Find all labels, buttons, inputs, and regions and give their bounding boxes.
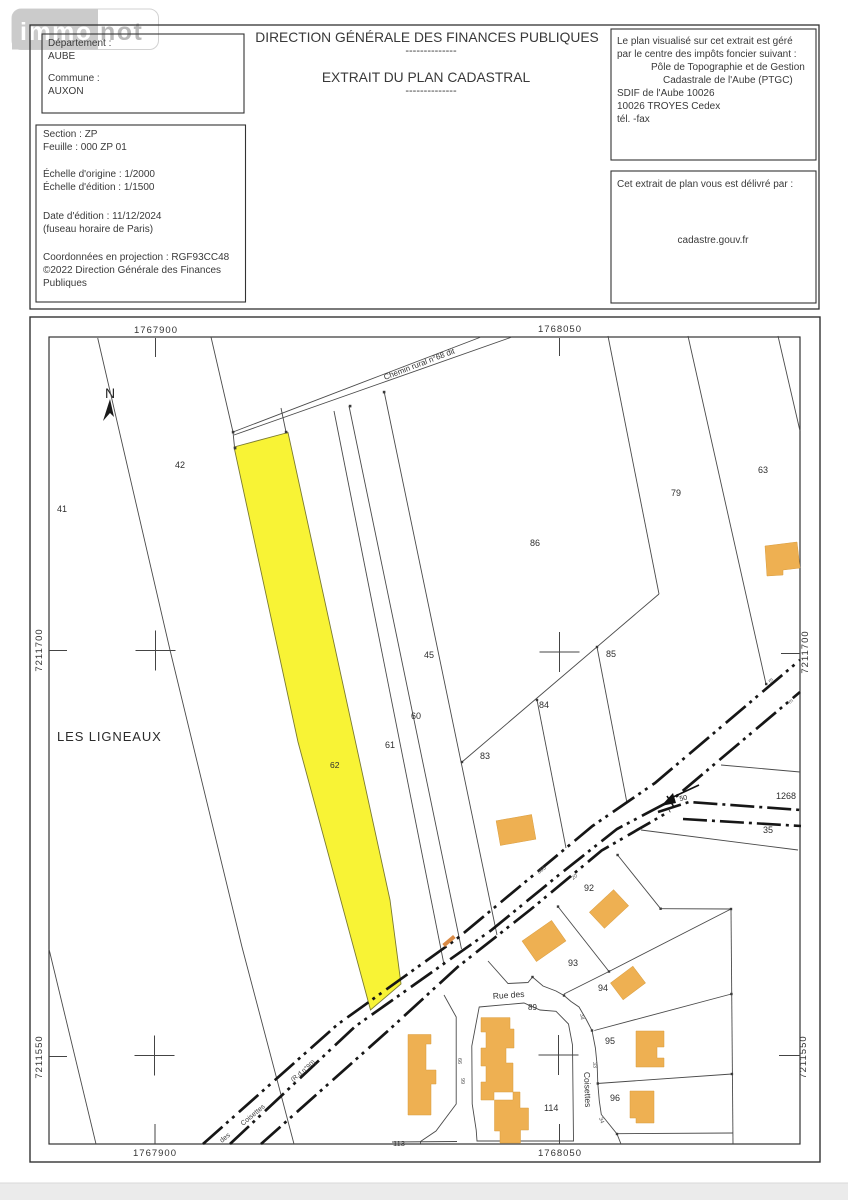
- svg-text:1768050: 1768050: [538, 324, 582, 335]
- svg-text:par le centre des impôts fonci: par le centre des impôts foncier suivant…: [617, 49, 797, 60]
- svg-text:1268: 1268: [776, 791, 796, 801]
- svg-text:(fuseau horaire de Paris): (fuseau horaire de Paris): [43, 224, 153, 235]
- svg-text:99: 99: [459, 1078, 465, 1084]
- svg-text:95: 95: [605, 1036, 615, 1046]
- svg-text:79: 79: [671, 488, 681, 498]
- svg-text:Coisettes: Coisettes: [582, 1072, 593, 1108]
- svg-text:63: 63: [758, 465, 768, 475]
- svg-text:1767900: 1767900: [133, 1148, 177, 1159]
- svg-text:Département :: Département :: [48, 38, 111, 49]
- svg-text:Commune :: Commune :: [48, 73, 100, 84]
- svg-text:42: 42: [175, 460, 185, 470]
- svg-text:61: 61: [385, 740, 395, 750]
- svg-text:DIRECTION GÉNÉRALE DES FINANCE: DIRECTION GÉNÉRALE DES FINANCES PUBLIQUE…: [255, 29, 598, 45]
- svg-text:cadastre.gouv.fr: cadastre.gouv.fr: [678, 235, 750, 246]
- svg-text:1768050: 1768050: [538, 1148, 582, 1159]
- svg-text:AUBE: AUBE: [48, 51, 76, 62]
- svg-text:62: 62: [330, 760, 340, 770]
- svg-text:113: 113: [393, 1139, 405, 1148]
- svg-text:41: 41: [57, 504, 67, 514]
- svg-text:83: 83: [480, 751, 490, 761]
- svg-text:114: 114: [544, 1103, 558, 1113]
- svg-text:Section : ZP: Section : ZP: [43, 129, 98, 140]
- svg-text:Pôle de Topographie et de Gest: Pôle de Topographie et de Gestion: [651, 62, 805, 73]
- svg-text:84: 84: [539, 700, 549, 710]
- svg-text:7211700: 7211700: [800, 630, 811, 673]
- svg-text:Date d'édition : 11/12/2024: Date d'édition : 11/12/2024: [43, 211, 162, 222]
- svg-text:33: 33: [591, 1062, 597, 1069]
- svg-text:--------------: --------------: [405, 45, 457, 57]
- svg-text:Le plan visualisé sur cet extr: Le plan visualisé sur cet extrait est gé…: [617, 36, 793, 47]
- svg-text:7211550: 7211550: [34, 1035, 45, 1078]
- svg-text:10026 TROYES Cedex: 10026 TROYES Cedex: [617, 101, 720, 112]
- svg-text:tél. -fax: tél. -fax: [617, 114, 650, 125]
- svg-text:35: 35: [763, 825, 773, 835]
- svg-text:86: 86: [530, 538, 540, 548]
- svg-text:89: 89: [528, 1003, 537, 1012]
- svg-text:7211700: 7211700: [34, 628, 45, 671]
- svg-text:85: 85: [606, 649, 616, 659]
- svg-text:93: 93: [568, 958, 578, 968]
- svg-text:Feuille : 000 ZP 01: Feuille : 000 ZP 01: [43, 142, 127, 153]
- svg-text:66: 66: [456, 1058, 462, 1064]
- svg-text:Cet extrait de plan vous est d: Cet extrait de plan vous est délivré par…: [617, 179, 793, 190]
- svg-text:--------------: --------------: [405, 85, 457, 97]
- svg-text:Publiques: Publiques: [43, 278, 87, 289]
- svg-text:©2022 Direction Générale des F: ©2022 Direction Générale des Finances: [43, 265, 221, 276]
- svg-text:45: 45: [424, 650, 434, 660]
- svg-text:Échelle d'origine : 1/2000: Échelle d'origine : 1/2000: [43, 167, 155, 180]
- svg-text:1767900: 1767900: [134, 325, 178, 336]
- svg-text:7211550: 7211550: [798, 1035, 809, 1078]
- svg-text:Échelle d'édition : 1/1500: Échelle d'édition : 1/1500: [43, 180, 155, 193]
- svg-text:LES LIGNEAUX: LES LIGNEAUX: [57, 729, 162, 744]
- svg-text:Cadastrale de l'Aube (PTGC): Cadastrale de l'Aube (PTGC): [663, 75, 793, 86]
- svg-text:Coordonnées en projection : RG: Coordonnées en projection : RGF93CC48: [43, 252, 230, 263]
- svg-text:SDIF de l'Aube 10026: SDIF de l'Aube 10026: [617, 88, 715, 99]
- svg-text:60: 60: [411, 711, 421, 721]
- svg-text:EXTRAIT DU PLAN CADASTRAL: EXTRAIT DU PLAN CADASTRAL: [322, 70, 531, 85]
- svg-text:34: 34: [578, 1013, 585, 1020]
- svg-text:96: 96: [610, 1093, 620, 1103]
- svg-text:AUXON: AUXON: [48, 86, 84, 97]
- svg-text:92: 92: [584, 883, 594, 893]
- svg-text:94: 94: [598, 983, 608, 993]
